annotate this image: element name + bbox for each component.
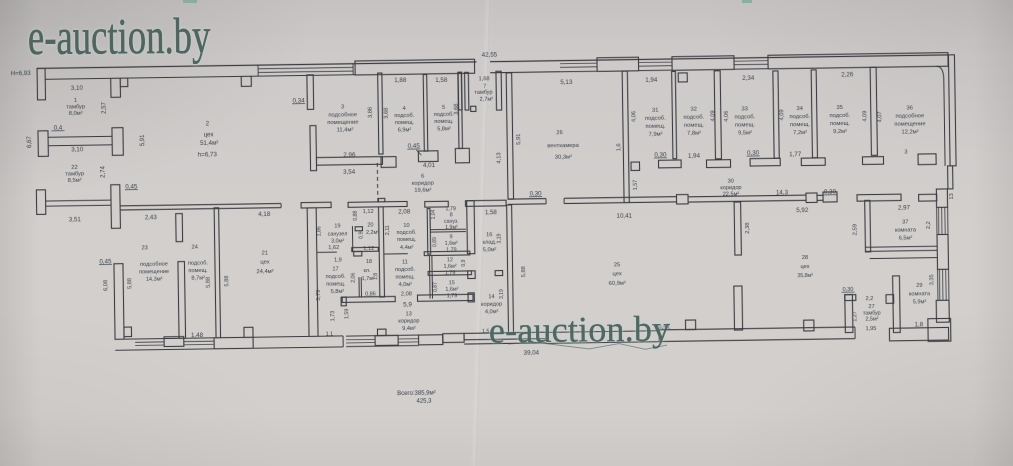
svg-text:5,88: 5,88 [224,276,230,287]
svg-text:помещ.: помещ. [434,119,454,125]
svg-text:24,4м²: 24,4м² [256,269,273,275]
svg-text:помещ.: помещ. [735,122,755,128]
svg-text:13: 13 [949,193,955,199]
svg-text:2,08: 2,08 [401,291,412,297]
svg-text:3,68: 3,68 [454,104,460,115]
svg-text:0,9: 0,9 [461,259,467,266]
svg-text:помещ.: помещ. [188,268,208,274]
svg-text:1,79: 1,79 [447,293,458,299]
svg-text:4,18: 4,18 [258,211,271,218]
svg-text:6,5м²: 6,5м² [899,235,913,241]
svg-text:12: 12 [447,257,453,263]
svg-text:27: 27 [868,304,874,310]
svg-text:комната: комната [909,291,931,297]
svg-text:5,91: 5,91 [516,134,522,145]
svg-text:1,6м²: 1,6м² [443,264,456,270]
svg-text:подсоб.: подсоб. [789,114,810,120]
svg-text:1,94: 1,94 [688,153,701,160]
svg-text:5,88: 5,88 [521,266,527,277]
svg-text:1,12: 1,12 [363,209,374,215]
svg-text:1,48: 1,48 [191,332,204,339]
svg-text:9,5м²: 9,5м² [738,130,752,136]
svg-text:помещ.: помещ. [830,121,850,127]
svg-text:3,19: 3,19 [496,233,502,243]
svg-text:14,3: 14,3 [776,189,789,196]
svg-text:тамбур: тамбур [474,90,492,96]
svg-text:Всего:385,9м²: Всего:385,9м² [397,391,436,398]
svg-text:4,09: 4,09 [862,111,868,122]
svg-text:22,5м²: 22,5м² [723,191,740,197]
svg-text:4,06: 4,06 [631,111,637,122]
svg-text:1,58: 1,58 [485,209,498,216]
svg-text:1,8: 1,8 [373,273,379,280]
svg-text:h=6,73: h=6,73 [198,151,218,158]
svg-text:1,94: 1,94 [645,77,658,84]
svg-text:2,2м²: 2,2м² [366,230,379,236]
svg-text:2,06: 2,06 [351,273,357,283]
svg-text:32: 32 [690,107,697,113]
svg-text:тамбур: тамбур [66,104,85,110]
svg-text:1,95: 1,95 [865,326,876,332]
svg-text:помещ.: помещ. [396,274,416,280]
svg-text:подсобное: подсобное [140,262,168,268]
svg-text:30: 30 [728,179,734,185]
svg-text:19,6м²: 19,6м² [414,188,431,194]
svg-text:7,9м²: 7,9м² [649,132,663,138]
svg-text:20: 20 [367,222,373,228]
svg-text:37: 37 [902,220,908,226]
svg-text:2,7м²: 2,7м² [480,97,494,103]
svg-text:0,9: 0,9 [358,231,364,238]
svg-text:2,59: 2,59 [852,224,858,235]
svg-text:14: 14 [488,294,494,300]
svg-text:6,08: 6,08 [103,280,109,291]
svg-text:1,9: 1,9 [334,257,342,263]
svg-text:1,6м²: 1,6м² [445,241,458,247]
svg-text:30,3м²: 30,3м² [555,154,572,160]
svg-text:клад.: клад. [483,240,497,246]
svg-text:5,0м²: 5,0м² [483,247,497,253]
svg-text:помещение: помещение [327,120,358,126]
svg-text:помещ.: помещ. [395,120,415,126]
svg-text:коридор: коридор [481,302,502,308]
svg-text:подсоб.: подсоб. [645,116,666,122]
svg-text:10,41: 10,41 [617,213,633,220]
svg-text:1,1: 1,1 [326,331,334,337]
svg-text:8,5м²: 8,5м² [68,178,82,184]
svg-text:1,88: 1,88 [394,77,407,84]
svg-text:19: 19 [334,223,340,229]
svg-text:4,0м²: 4,0м² [399,282,413,288]
svg-text:цех: цех [260,259,269,265]
svg-text:8,0м²: 8,0м² [69,111,83,117]
svg-text:6: 6 [421,174,424,180]
svg-text:21: 21 [262,251,269,257]
svg-text:22: 22 [71,165,78,171]
svg-text:подсобное: подсобное [328,112,357,118]
svg-text:3: 3 [904,150,907,156]
svg-text:3,10: 3,10 [71,146,84,153]
svg-text:1,57: 1,57 [633,180,639,191]
svg-text:8: 8 [450,212,453,218]
svg-text:5,8м²: 5,8м² [331,289,345,295]
svg-text:3: 3 [341,104,344,110]
svg-text:тамбур: тамбур [65,171,84,177]
svg-text:14,3м²: 14,3м² [146,277,163,283]
svg-text:санузел: санузел [328,231,348,237]
svg-text:1,9м²: 1,9м² [445,224,458,230]
svg-text:51,4м²: 51,4м² [200,140,218,147]
svg-text:цех: цех [204,131,215,138]
svg-text:2,11: 2,11 [385,225,391,235]
svg-text:подсоб.: подсоб. [395,267,416,273]
svg-text:1,79: 1,79 [446,247,457,253]
svg-text:помещ.: помещ. [397,237,417,243]
svg-text:3,10: 3,10 [71,85,84,92]
svg-text:4,01: 4,01 [423,162,436,169]
svg-text:5,88: 5,88 [127,278,133,289]
svg-text:4,09: 4,09 [779,109,785,120]
svg-text:кл.: кл. [364,268,371,274]
svg-text:33: 33 [741,106,748,112]
svg-text:26: 26 [556,130,563,136]
svg-text:29: 29 [916,283,922,289]
svg-text:1,68: 1,68 [479,76,490,82]
svg-text:4,06: 4,06 [724,111,730,122]
svg-text:подсоб.: подсоб. [394,113,415,119]
svg-text:1,73: 1,73 [330,311,336,322]
svg-text:4,07: 4,07 [877,111,883,122]
svg-text:60,9м²: 60,9м² [609,281,626,287]
svg-text:подсоб.: подсоб. [188,260,209,266]
svg-text:1,79: 1,79 [445,270,456,276]
svg-text:425,3: 425,3 [416,399,432,405]
svg-text:подсобное: подсобное [895,113,924,119]
svg-text:9: 9 [450,234,453,240]
svg-text:подсоб.: подсоб. [734,114,755,120]
svg-text:3,54: 3,54 [343,169,356,176]
svg-text:28: 28 [802,255,808,261]
svg-text:комната: комната [895,227,917,233]
svg-text:3,19: 3,19 [499,289,505,299]
svg-text:36: 36 [906,105,913,111]
svg-text:1,04: 1,04 [431,209,437,219]
svg-text:3,86: 3,86 [368,107,374,118]
svg-text:12,2м²: 12,2м² [901,129,918,135]
svg-text:4,4м²: 4,4м² [400,245,414,251]
svg-text:цех: цех [801,264,810,270]
svg-text:подсоб.: подсоб. [829,113,850,119]
svg-text:5,13: 5,13 [560,79,573,86]
svg-text:e-auction.by: e-auction.by [489,309,671,351]
svg-text:31: 31 [652,108,659,114]
svg-text:венткамера: венткамера [547,143,580,149]
svg-text:5,9: 5,9 [403,301,412,308]
svg-text:35: 35 [836,105,843,111]
svg-text:3,51: 3,51 [69,216,82,223]
svg-text:42,55: 42,55 [482,52,498,59]
svg-text:1,59: 1,59 [344,309,350,320]
svg-text:39,04: 39,04 [524,349,540,356]
svg-text:2,34: 2,34 [742,75,755,82]
svg-text:25: 25 [614,262,621,268]
svg-text:коридор: коридор [412,181,434,187]
svg-text:11: 11 [402,259,408,265]
svg-text:11,4м²: 11,4м² [337,127,354,133]
svg-text:0,88: 0,88 [353,211,359,221]
svg-text:2,57: 2,57 [102,101,108,113]
svg-text:35,8м²: 35,8м² [797,273,813,279]
svg-text:24: 24 [192,245,198,251]
svg-text:2,2: 2,2 [866,296,874,302]
svg-text:16: 16 [486,232,492,238]
svg-text:2,08: 2,08 [398,208,411,215]
svg-text:2,96: 2,96 [343,152,356,159]
svg-text:1,58: 1,58 [435,77,448,84]
svg-text:3,35: 3,35 [929,274,935,285]
svg-text:18: 18 [366,259,372,265]
svg-text:1,77: 1,77 [789,151,802,158]
svg-text:4,09: 4,09 [710,110,716,121]
svg-text:1: 1 [74,98,77,104]
svg-text:5,92: 5,92 [796,207,809,214]
svg-text:13: 13 [406,311,412,317]
svg-text:0,87: 0,87 [433,282,439,292]
svg-text:2,38: 2,38 [745,222,751,233]
svg-text:4: 4 [403,106,406,112]
svg-text:1,8: 1,8 [914,321,923,328]
svg-text:5,88: 5,88 [206,277,212,288]
svg-text:0,89: 0,89 [432,237,438,247]
svg-text:помещ.: помещ. [684,123,704,129]
svg-text:3,79: 3,79 [316,290,322,301]
svg-text:7,2м²: 7,2м² [793,130,807,136]
svg-text:подсоб.: подсоб. [434,112,455,118]
svg-text:8,7м²: 8,7м² [191,275,205,281]
svg-text:1,86: 1,86 [316,226,322,236]
svg-text:1,12: 1,12 [363,246,374,252]
svg-text:коридор: коридор [398,318,419,324]
svg-text:подсоб.: подсоб. [326,274,347,280]
svg-text:17: 17 [332,266,338,272]
svg-text:15: 15 [449,280,455,286]
svg-text:подсоб.: подсоб. [396,230,417,236]
svg-text:5,8м²: 5,8м² [437,126,451,132]
svg-text:3,68: 3,68 [384,108,390,119]
svg-text:помещ.: помещ. [790,122,810,128]
svg-text:9,4м²: 9,4м² [402,326,416,332]
svg-text:34: 34 [796,106,803,112]
svg-text:2,97: 2,97 [898,204,911,211]
svg-text:помещ.: помещ. [645,124,665,130]
svg-text:5,9м²: 5,9м² [913,299,927,305]
svg-text:2,2: 2,2 [926,221,932,229]
svg-text:7,8м²: 7,8м² [687,131,701,137]
svg-text:2,5м²: 2,5м² [865,317,878,323]
svg-text:5,91: 5,91 [140,134,146,146]
svg-text:23: 23 [142,245,148,251]
svg-text:10: 10 [403,223,409,229]
svg-text:1,6м²: 1,6м² [445,287,458,293]
svg-text:2,74: 2,74 [100,165,106,177]
svg-text:1,62: 1,62 [328,245,339,251]
svg-text:9,2м²: 9,2м² [833,129,847,135]
svg-text:3,0м²: 3,0м² [331,238,344,244]
svg-text:e-auction.by: e-auction.by [28,7,211,66]
svg-text:5: 5 [442,105,445,111]
svg-text:0,86: 0,86 [365,291,376,297]
svg-text:6,67: 6,67 [27,135,33,147]
svg-text:цех: цех [612,271,621,277]
svg-text:4,13: 4,13 [496,152,502,163]
svg-text:помещение: помещение [139,269,169,275]
svg-text:6,9м²: 6,9м² [398,127,412,133]
svg-text:2,26: 2,26 [841,71,854,78]
svg-text:подсоб.: подсоб. [683,115,704,121]
svg-text:2,43: 2,43 [145,214,158,221]
svg-text:Н=6,93: Н=6,93 [11,70,32,77]
svg-text:помещ.: помещ. [326,281,346,287]
svg-text:1,27: 1,27 [852,311,858,322]
svg-text:помещение: помещение [894,121,925,127]
svg-text:1,6: 1,6 [616,143,622,151]
